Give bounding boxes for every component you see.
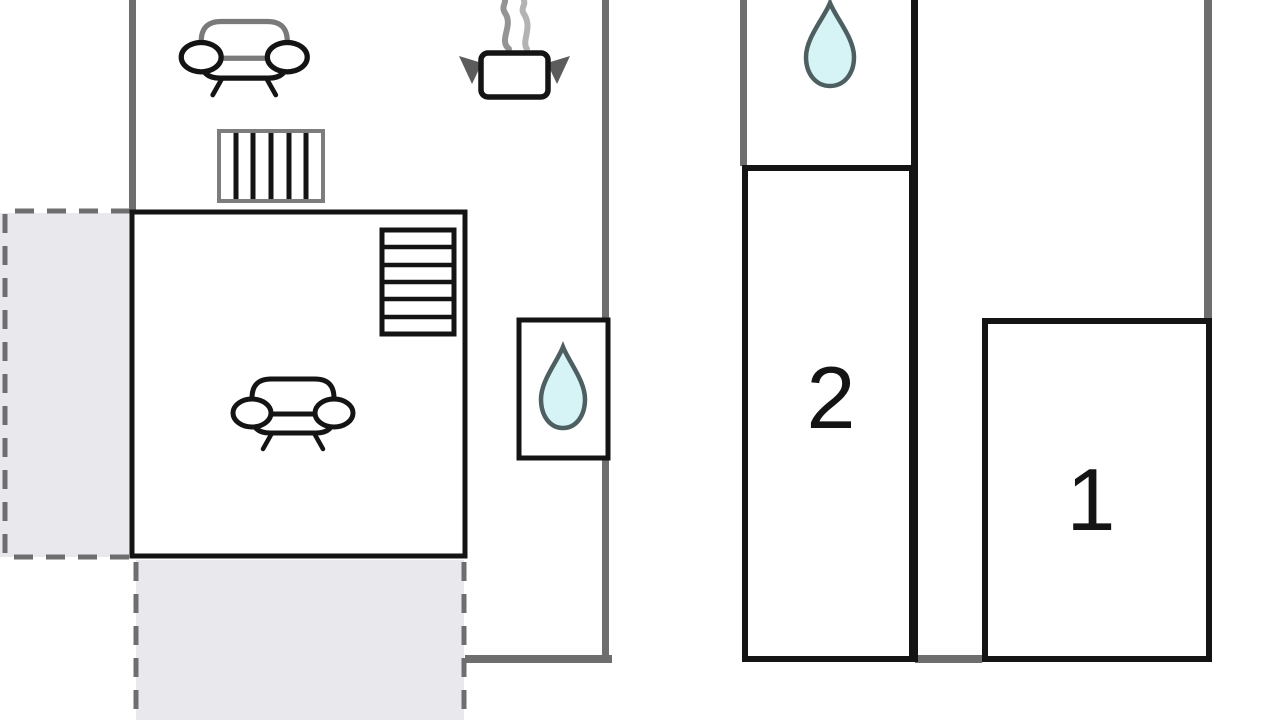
right-unit: 2 1 — [740, 0, 1212, 663]
right-unit-south-wall-gap — [915, 655, 982, 663]
room-label-1: 1 — [1067, 450, 1116, 549]
radiator-icon — [219, 131, 323, 201]
sofa-icon — [181, 21, 307, 95]
right-unit-west-wall — [740, 0, 747, 166]
left-unit — [0, 0, 612, 720]
steam-icon — [503, 0, 527, 49]
floor-plan: 2 1 — [0, 0, 1280, 720]
cooking-pot-icon — [459, 53, 570, 97]
left-unit-west-wall — [129, 0, 136, 213]
terrace-lower-area — [136, 560, 464, 720]
room-label-2: 2 — [807, 348, 856, 447]
left-unit-south-wall — [465, 655, 612, 663]
terrace-upper-area — [0, 213, 130, 557]
right-unit-east-wall — [1204, 0, 1212, 318]
stairs-icon — [382, 230, 454, 334]
floor-plan-page: 2 1 — [0, 0, 1280, 720]
water-drop-icon — [806, 3, 854, 86]
